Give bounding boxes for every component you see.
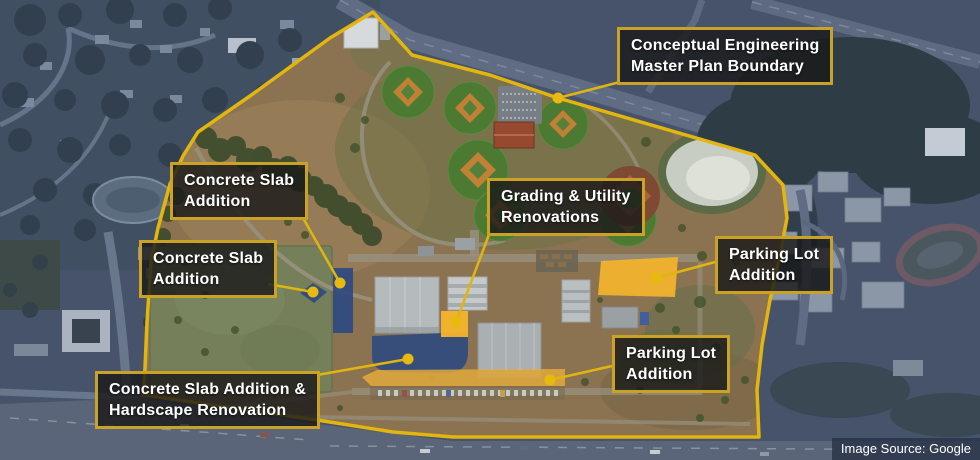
callout-line: Parking Lot [626, 343, 716, 364]
callout-grading-utility: Grading & Utility Renovations [487, 178, 645, 236]
callout-concrete-slab-lower: Concrete Slab Addition [139, 240, 277, 298]
overlay-parking-right [598, 257, 678, 297]
master-plan-map: Conceptual Engineering Master Plan Bound… [0, 0, 980, 460]
marker-dot [651, 273, 662, 284]
image-source-attribution: Image Source: Google [832, 438, 980, 460]
callout-master-plan-boundary: Conceptual Engineering Master Plan Bound… [617, 27, 833, 85]
marker-dot [335, 278, 346, 289]
callout-line: Grading & Utility [501, 186, 631, 207]
callout-line: Addition [184, 191, 294, 212]
callout-parking-lot-right: Parking Lot Addition [715, 236, 833, 294]
callout-hardscape-renovation: Concrete Slab Addition & Hardscape Renov… [95, 371, 320, 429]
overlay-parking-strip [362, 369, 565, 386]
callout-line: Conceptual Engineering [631, 35, 819, 56]
callout-line: Addition [153, 269, 263, 290]
callout-line: Renovations [501, 207, 631, 228]
callout-line: Addition [626, 364, 716, 385]
callout-line: Concrete Slab Addition & [109, 379, 306, 400]
marker-dot [545, 375, 556, 386]
callout-line: Concrete Slab [184, 170, 294, 191]
marker-dot [553, 93, 564, 104]
callout-line: Concrete Slab [153, 248, 263, 269]
marker-dot [308, 287, 319, 298]
marker-dot [403, 354, 414, 365]
overlay-hardscape [372, 332, 468, 373]
callout-line: Hardscape Renovation [109, 400, 306, 421]
callout-concrete-slab-upper: Concrete Slab Addition [170, 162, 308, 220]
callout-line: Parking Lot [729, 244, 819, 265]
callout-line: Master Plan Boundary [631, 56, 819, 77]
marker-dot [451, 317, 462, 328]
callout-line: Addition [729, 265, 819, 286]
callout-parking-lot-bottom: Parking Lot Addition [612, 335, 730, 393]
